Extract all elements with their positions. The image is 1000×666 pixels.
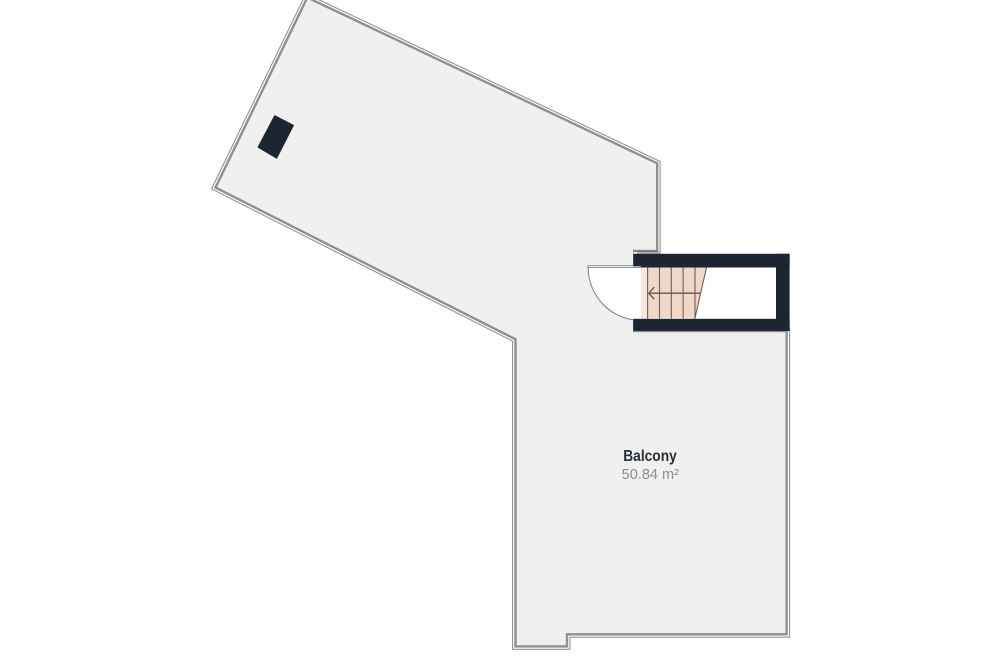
svg-text:50.84 m²: 50.84 m² — [622, 467, 679, 483]
svg-text:Balcony: Balcony — [623, 448, 677, 465]
